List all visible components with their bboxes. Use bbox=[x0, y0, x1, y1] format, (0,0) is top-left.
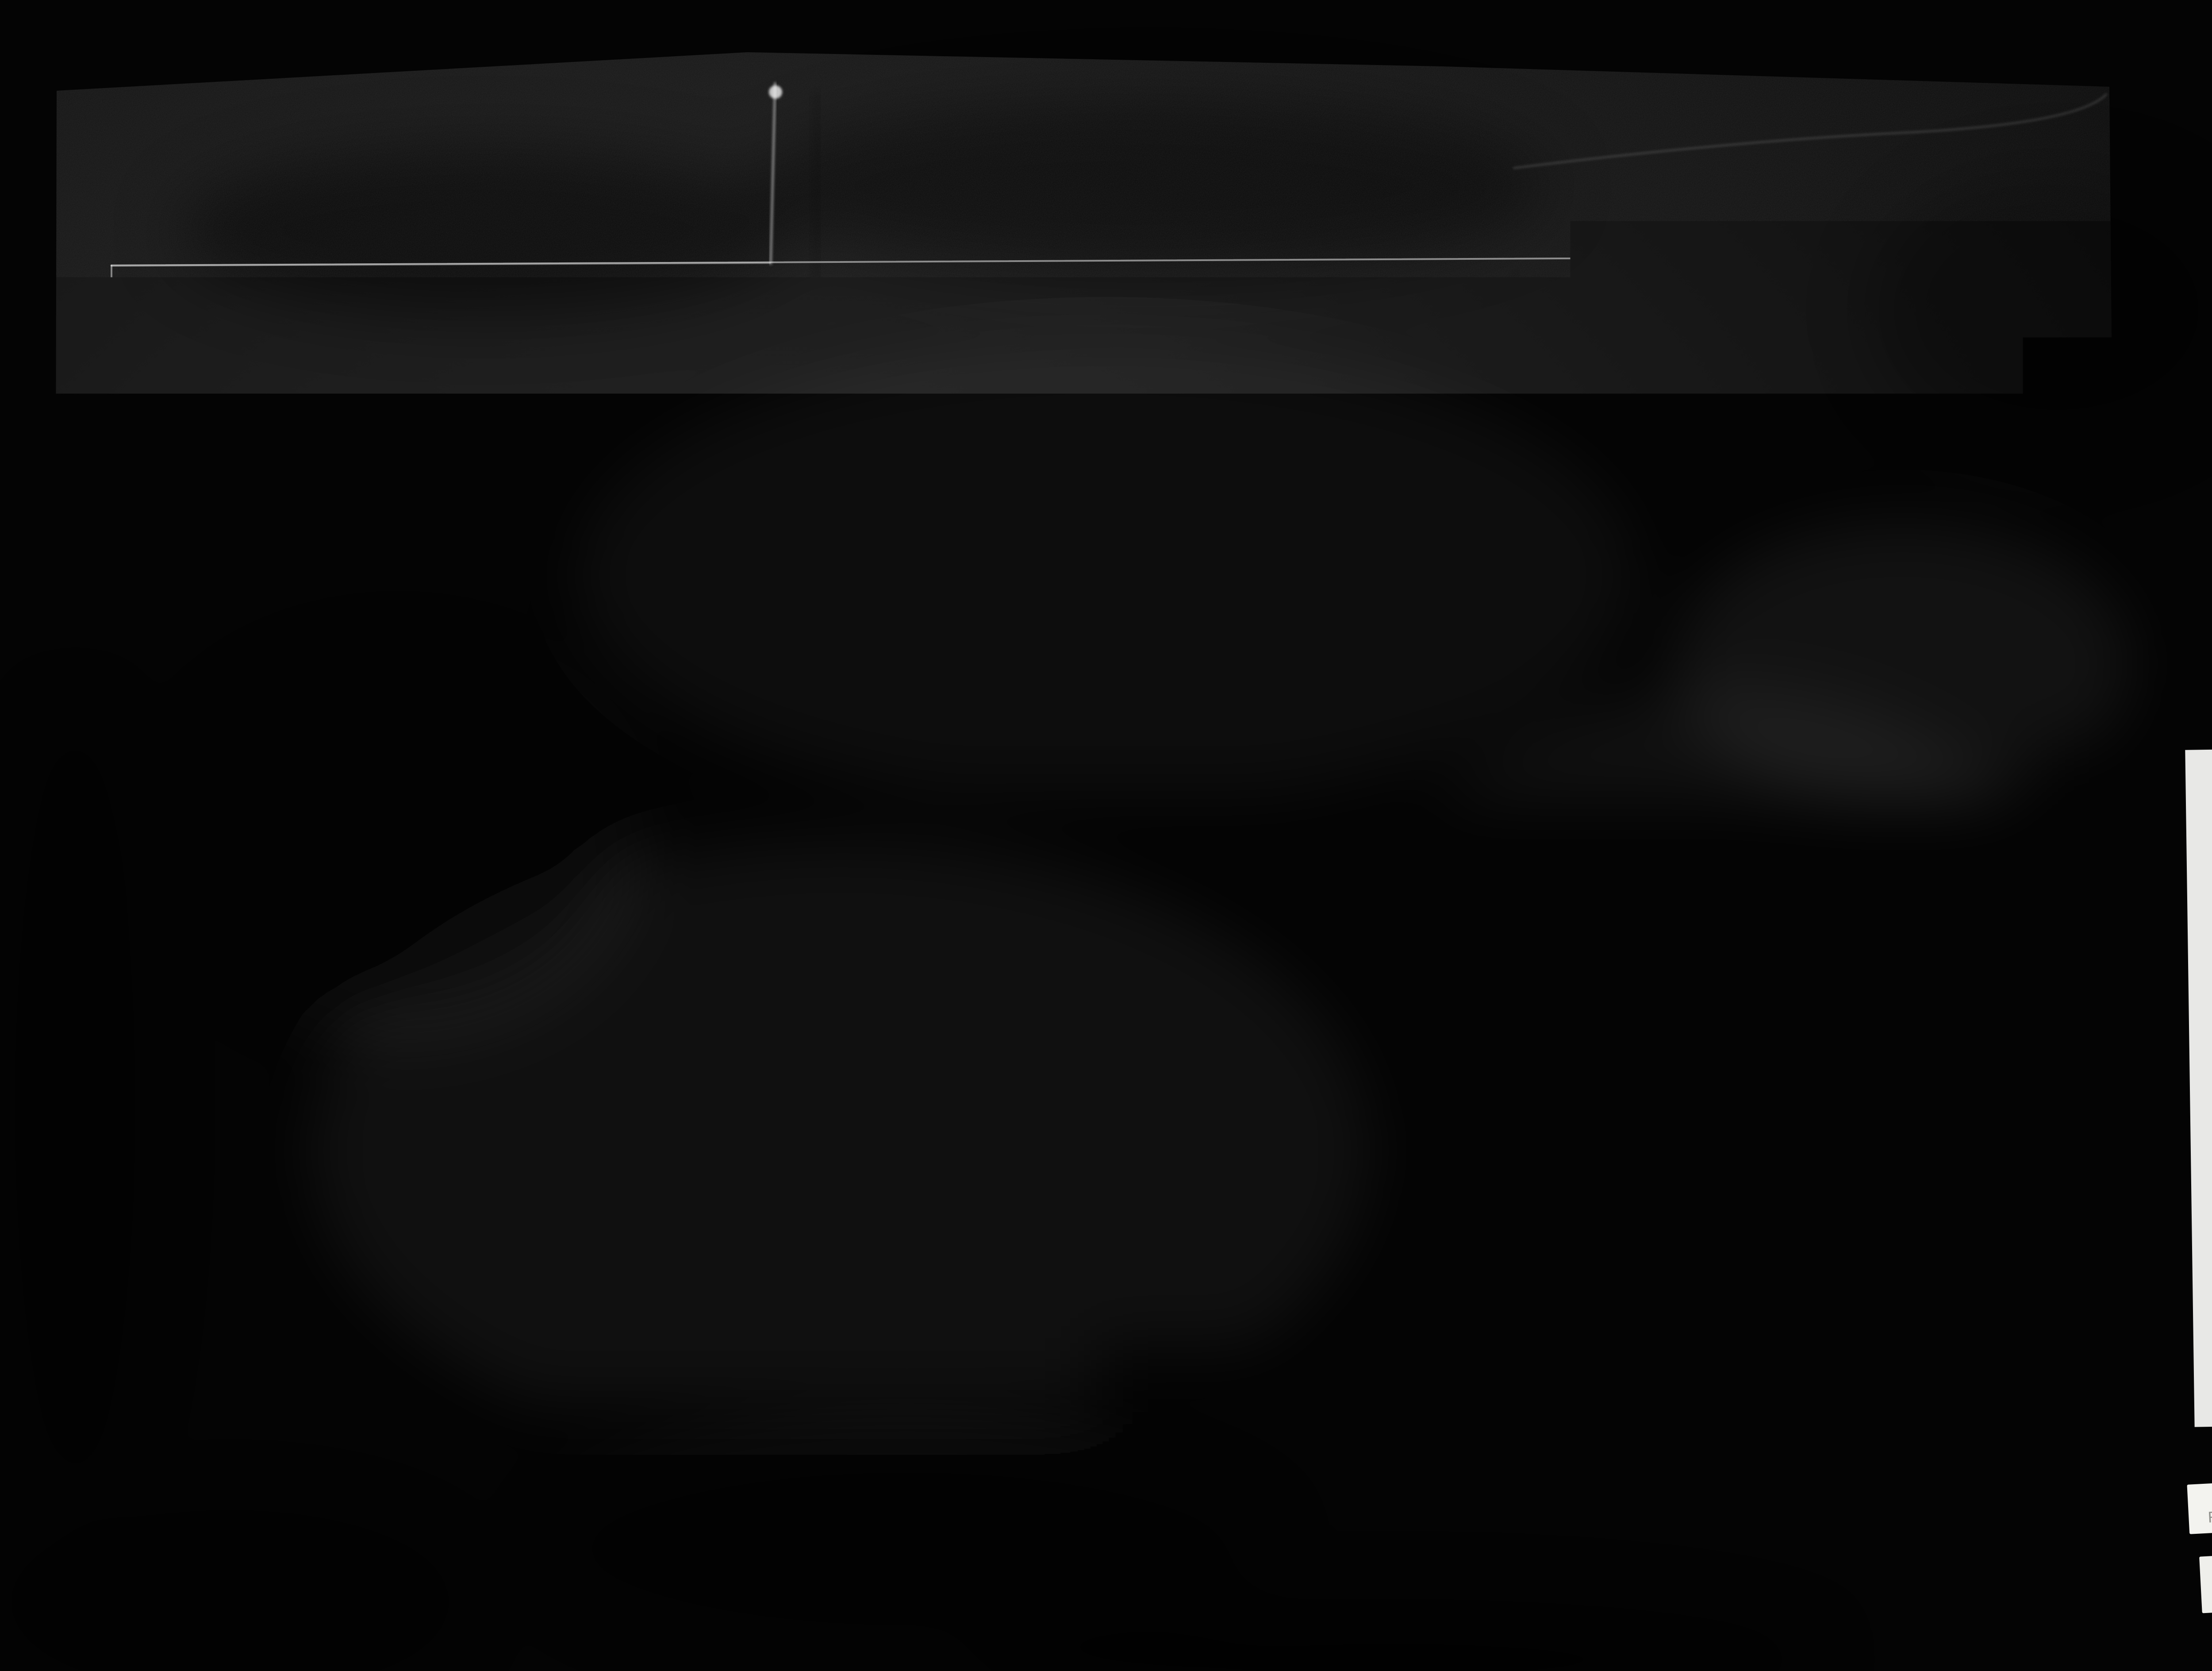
sketch-title-line3: CAMP. bbox=[1947, 1559, 2036, 1587]
open-verandah-label-elevation: OPEN VERANDAH. bbox=[345, 1094, 526, 1114]
sketch-title-line2: OF bbox=[1988, 1543, 2010, 1559]
sash-note: 1¾" SLIDING SASH 9 LIGHTS bbox=[998, 946, 1273, 965]
dining-room-label-plan: DINING ROOM. bbox=[748, 1456, 973, 1484]
doors-note: NEW DOORS & STEPS bbox=[948, 1560, 1190, 1583]
blueprint-sheet bbox=[0, 52, 2212, 1671]
heater-note: NEW HEATER HOUSE bbox=[1960, 770, 2122, 787]
microfilm-scan-frame: WINDOW OPEN VERANDAH DINING ROOM. 6"x6" … bbox=[0, 0, 2212, 1671]
blueprint-scan: WINDOW OPEN VERANDAH DINING ROOM. 6"x6" … bbox=[0, 0, 2212, 1671]
repeat-sticker: Repeat Répétition bbox=[2187, 1478, 2212, 1534]
partition-title: NEW DINING ROOM PARTITION. bbox=[703, 820, 1179, 847]
elevation-title: ELEVATION bbox=[784, 1272, 972, 1302]
open-verandah-label-section: OPEN VERANDAH bbox=[327, 614, 509, 635]
paint-note: D. PRIMED & BACK PUTTIED. bbox=[1357, 939, 1630, 959]
window-label: WINDOW bbox=[392, 585, 471, 602]
kitchen-label: KITCHEN bbox=[1419, 1445, 1543, 1471]
dining-room-label-section: DINING ROOM. bbox=[742, 597, 930, 621]
down-label: DOWN bbox=[1443, 1564, 1527, 1584]
laundry-note: NEW LAUNDRY HOUSE bbox=[1948, 745, 2124, 762]
